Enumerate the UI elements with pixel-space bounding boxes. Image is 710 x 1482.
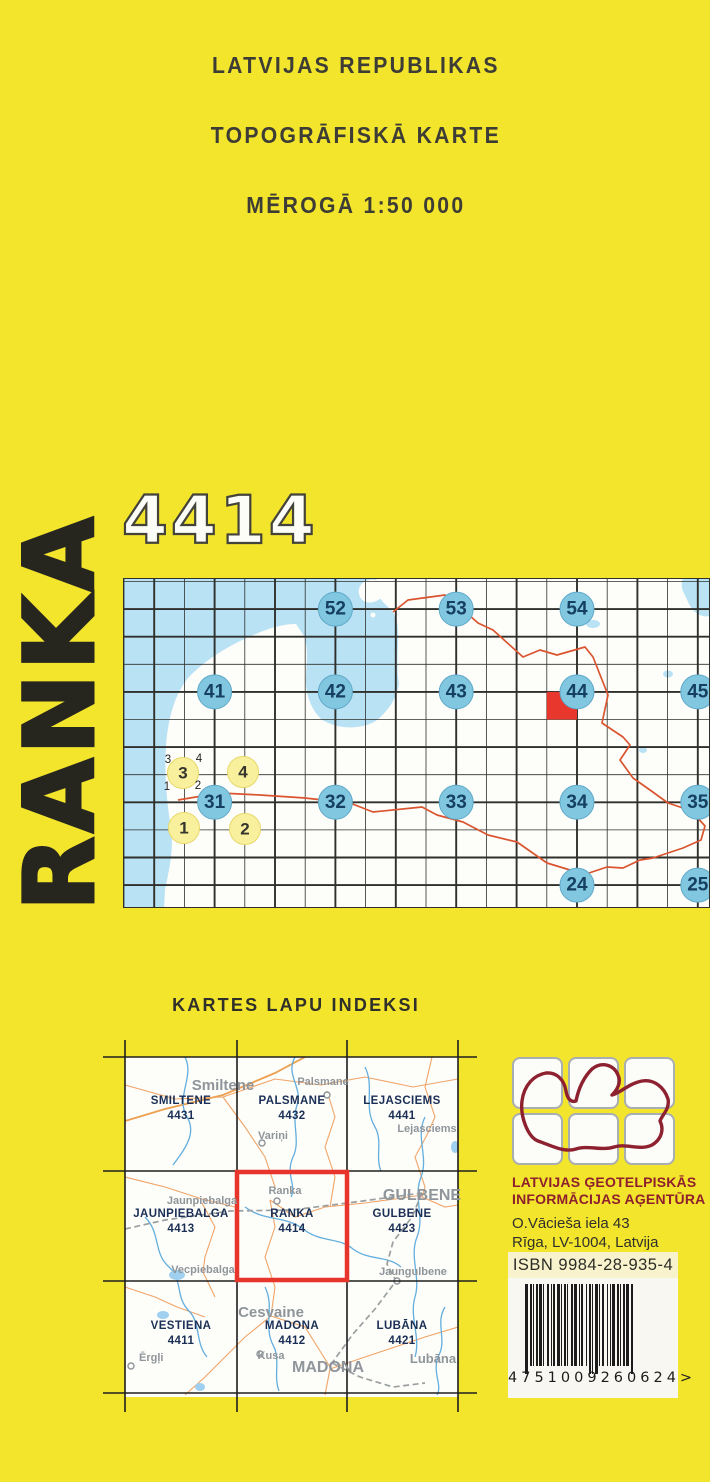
overview-sheet-circle: 24 [560,868,594,902]
place-label: Kusa [258,1350,286,1362]
overview-sheet-circle: 54 [560,592,594,626]
title-scale: MĒROGĀ 1:50 000 [29,192,682,219]
agency-address-line2: Rīga, LV-1004, Latvija [512,1234,658,1251]
svg-text:VESTIENA: VESTIENA [151,1320,212,1332]
barcode-digits: 4751009260624> [508,1370,678,1386]
svg-text:41: 41 [204,681,226,702]
overview-sheet-circle: 31 [198,785,232,819]
place-label: Ērgļi [139,1352,163,1364]
svg-text:4414: 4414 [278,1223,305,1235]
overview-sheet-circle: 34 [560,785,594,819]
place-label: Variņi [258,1130,288,1142]
islet [371,613,376,618]
agency-name-line2: INFORMĀCIJAS AĢENTŪRA [512,1191,705,1207]
svg-text:PALSMANE: PALSMANE [259,1095,326,1107]
sheet-name-vertical: RANKA [5,512,115,912]
place-label: Cesvaine [238,1304,304,1321]
latvia-overview-map: 525354414243444531323334352425 3412 3412 [123,578,710,908]
svg-text:4411: 4411 [168,1335,195,1347]
svg-text:RANKA: RANKA [270,1208,314,1220]
lake [663,671,673,678]
svg-text:JAUNPIEBALGA: JAUNPIEBALGA [133,1208,229,1220]
title-map-type: TOPOGRĀFISKĀ KARTE [29,122,682,149]
overview-sheet-circle: 45 [681,675,710,709]
svg-text:LEJASCIEMS: LEJASCIEMS [363,1095,441,1107]
svg-text:54: 54 [566,599,588,620]
svg-text:2: 2 [240,820,249,839]
svg-text:GULBENE: GULBENE [372,1208,431,1220]
overview-sheet-circle: 41 [198,675,232,709]
svg-text:4421: 4421 [388,1335,415,1347]
place-label: Jaungulbene [379,1266,447,1278]
isbn-text: ISBN 9984-28-935-4 [508,1252,678,1278]
overview-quarter-circle: 1 [169,813,200,844]
overview-sheet-circle: 25 [681,868,710,902]
title-country: LATVIJAS REPUBLIKAS [29,52,682,79]
svg-text:SMILTENE: SMILTENE [151,1095,212,1107]
svg-text:25: 25 [687,875,709,896]
svg-text:24: 24 [566,875,588,896]
sheet-number: 4414 [122,482,318,559]
svg-text:32: 32 [325,792,346,813]
svg-text:4441: 4441 [388,1110,415,1122]
place-label: Vecpiebalga [171,1264,235,1276]
agency-address-line1: O.Vācieša iela 43 [512,1215,630,1232]
place-label: Lubāna [410,1351,457,1366]
place-label: MADONA [292,1359,364,1376]
place-label: Smiltene [192,1077,255,1094]
overview-quarter-circle: 2 [230,814,261,845]
svg-text:45: 45 [687,681,709,702]
svg-text:35: 35 [687,792,709,813]
barcode: 4751009260624> [508,1278,678,1398]
map-cover: LATVIJAS REPUBLIKAS TOPOGRĀFISKĀ KARTE M… [0,0,710,1482]
overview-sheet-circle: 52 [318,592,352,626]
overview-sheet-circle: 35 [681,785,710,819]
svg-text:MADONA: MADONA [265,1320,319,1332]
overview-sheet-circle: 42 [318,675,352,709]
overview-sheet-circle: 32 [318,785,352,819]
svg-text:1: 1 [179,819,188,838]
barcode-bars [519,1284,669,1380]
overview-quarter-circle: 4 [228,757,259,788]
svg-text:53: 53 [446,599,467,620]
overview-quarter-digit: 2 [195,780,201,792]
overview-quarter-digit: 1 [164,781,170,793]
place-label: Palsmane [297,1076,348,1088]
overview-sheet-circle: 53 [439,592,473,626]
overview-sheet-circle: 33 [439,785,473,819]
place-label: Ranka [268,1185,302,1197]
svg-text:4423: 4423 [388,1223,415,1235]
svg-text:4432: 4432 [278,1110,305,1122]
overview-sheet-circle: 43 [439,675,473,709]
overview-sheet-circle: 44 [560,675,594,709]
index-heading: KARTES LAPU INDEKSI [0,995,592,1016]
overview-quarter-digit: 3 [165,754,171,766]
svg-text:4431: 4431 [167,1110,194,1122]
svg-text:4: 4 [238,763,248,782]
svg-text:52: 52 [325,599,346,620]
svg-text:34: 34 [566,792,588,813]
place-label: GULBENE [383,1187,462,1204]
svg-text:31: 31 [204,792,226,813]
svg-text:LUBĀNA: LUBĀNA [377,1320,428,1332]
svg-text:3: 3 [178,764,187,783]
svg-text:42: 42 [325,681,346,702]
svg-text:4412: 4412 [278,1335,305,1347]
agency-name-line1: LATVIJAS ĢEOTELPISKĀS [512,1174,696,1190]
logo-latvia-outline [512,1057,675,1165]
svg-text:43: 43 [446,681,467,702]
overview-quarter-digit: 4 [196,753,203,765]
place-label: Lejasciems [397,1123,456,1135]
place-label: Jaunpiebalga [167,1195,238,1207]
svg-text:4413: 4413 [167,1223,194,1235]
svg-text:33: 33 [446,792,467,813]
sheet-index-map: SmiltenePalsmaneVariņiLejasciemsJaunpieb… [100,1037,480,1417]
svg-text:44: 44 [566,681,588,702]
